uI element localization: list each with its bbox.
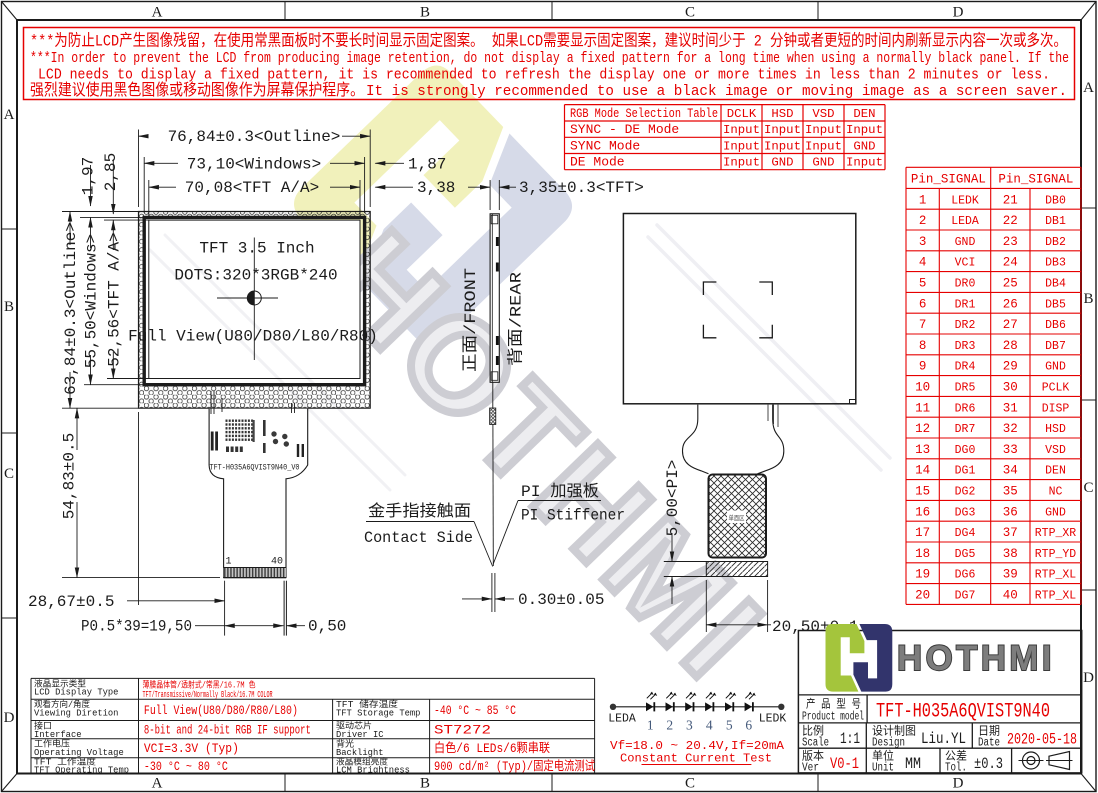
svg-text:9: 9 bbox=[919, 360, 927, 374]
svg-text:TFT-H035A6QVIST9N40: TFT-H035A6QVIST9N40 bbox=[876, 701, 1050, 724]
svg-text:LCD Display Type: LCD Display Type bbox=[34, 688, 118, 698]
svg-text:DG3: DG3 bbox=[955, 506, 976, 519]
svg-text:C: C bbox=[4, 466, 14, 482]
svg-text:DB6: DB6 bbox=[1045, 319, 1066, 332]
svg-text:金手指接触面: 金手指接触面 bbox=[368, 502, 471, 521]
svg-text:Interface: Interface bbox=[34, 730, 82, 740]
svg-text:900 cd/m² (Typ)/固定电流测试: 900 cd/m² (Typ)/固定电流测试 bbox=[434, 758, 595, 774]
svg-text:RTP_XR: RTP_XR bbox=[1035, 527, 1077, 540]
svg-text:2: 2 bbox=[666, 718, 673, 733]
svg-text:1: 1 bbox=[225, 557, 231, 568]
svg-text:54,83±0.5: 54,83±0.5 bbox=[61, 433, 79, 519]
svg-text:VSD: VSD bbox=[812, 107, 834, 121]
svg-text:Input: Input bbox=[805, 140, 842, 154]
svg-text:±0.3: ±0.3 bbox=[974, 755, 1003, 773]
svg-text:DEN: DEN bbox=[853, 107, 875, 121]
svg-text:Ver: Ver bbox=[802, 762, 819, 775]
svg-text:27: 27 bbox=[1003, 318, 1018, 332]
svg-text:强烈建议使用黑色图像或移动图像作为屏幕保护程序。: 强烈建议使用黑色图像或移动图像作为屏幕保护程序。 bbox=[30, 81, 364, 100]
svg-text:19: 19 bbox=[915, 568, 930, 582]
svg-text:LEDK: LEDK bbox=[951, 194, 979, 207]
svg-text:V0-1: V0-1 bbox=[830, 755, 859, 773]
svg-text:4: 4 bbox=[919, 256, 927, 270]
svg-text:HSD: HSD bbox=[1045, 423, 1066, 436]
svg-text:DE Mode: DE Mode bbox=[570, 155, 625, 170]
svg-text:24: 24 bbox=[1003, 256, 1018, 270]
svg-text:2020-05-18: 2020-05-18 bbox=[1007, 731, 1077, 749]
svg-text:32: 32 bbox=[1003, 422, 1018, 436]
svg-text:Pin_SIGNAL: Pin_SIGNAL bbox=[998, 173, 1073, 187]
svg-text:DEN: DEN bbox=[1045, 465, 1066, 478]
svg-text:B: B bbox=[420, 776, 430, 792]
svg-text:29: 29 bbox=[1003, 360, 1018, 374]
svg-text:D: D bbox=[4, 710, 15, 726]
svg-text:Input: Input bbox=[846, 156, 883, 170]
svg-text:DG4: DG4 bbox=[955, 527, 976, 540]
svg-text:Input: Input bbox=[846, 123, 883, 137]
svg-text:DG2: DG2 bbox=[955, 486, 976, 499]
svg-text:39: 39 bbox=[1003, 568, 1018, 582]
svg-text:D: D bbox=[1083, 670, 1094, 686]
svg-text:Constant Current Test: Constant Current Test bbox=[620, 752, 772, 766]
svg-text:0.30±0.05: 0.30±0.05 bbox=[518, 591, 604, 609]
svg-text:16: 16 bbox=[915, 505, 930, 519]
svg-text:35: 35 bbox=[1003, 485, 1018, 499]
svg-text:Design: Design bbox=[872, 737, 905, 750]
svg-text:Full View(U80/D80/L80/R80): Full View(U80/D80/L80/R80) bbox=[128, 328, 378, 346]
svg-text:2,85: 2,85 bbox=[102, 153, 120, 191]
svg-text:11: 11 bbox=[915, 401, 930, 415]
svg-text:1:1: 1:1 bbox=[840, 730, 860, 748]
svg-text:Full View(U80/D80/R80/L80): Full View(U80/D80/R80/L80) bbox=[144, 704, 298, 718]
svg-text:33: 33 bbox=[1003, 443, 1018, 457]
svg-text:DR0: DR0 bbox=[955, 278, 976, 291]
svg-text:55,50<Windows>: 55,50<Windows> bbox=[83, 234, 101, 368]
svg-text:GND: GND bbox=[853, 140, 875, 154]
svg-text:DB2: DB2 bbox=[1045, 236, 1066, 249]
svg-text:单面区: 单面区 bbox=[729, 513, 745, 522]
svg-text:Unit: Unit bbox=[872, 762, 894, 775]
svg-text:Tol.: Tol. bbox=[945, 762, 967, 775]
svg-text:6: 6 bbox=[745, 718, 752, 733]
svg-text:52,56<TFT A/A>: 52,56<TFT A/A> bbox=[105, 232, 123, 366]
svg-text:3: 3 bbox=[686, 718, 693, 733]
svg-text:Driver IC: Driver IC bbox=[336, 730, 384, 740]
svg-text:HSD: HSD bbox=[771, 107, 793, 121]
svg-text:21: 21 bbox=[1003, 193, 1018, 207]
svg-text:GND: GND bbox=[771, 156, 793, 170]
svg-text:70,08<TFT A/A>: 70,08<TFT A/A> bbox=[185, 179, 319, 197]
svg-text:8: 8 bbox=[919, 339, 927, 353]
svg-text:DB7: DB7 bbox=[1045, 340, 1066, 353]
svg-text:8-bit and 24-bit RGB IF suppor: 8-bit and 24-bit RGB IF support bbox=[144, 724, 311, 738]
svg-text:12: 12 bbox=[915, 422, 930, 436]
svg-text:Contact Side: Contact Side bbox=[364, 529, 473, 547]
svg-text:DG6: DG6 bbox=[955, 569, 976, 582]
svg-text:C: C bbox=[685, 5, 695, 21]
svg-text:DG7: DG7 bbox=[955, 590, 976, 603]
svg-text:产 品 型 号: 产 品 型 号 bbox=[806, 697, 861, 712]
svg-text:MM: MM bbox=[905, 755, 921, 773]
svg-text:73,10<Windows>: 73,10<Windows> bbox=[187, 155, 321, 173]
svg-text:C: C bbox=[685, 776, 695, 792]
svg-text:1,87: 1,87 bbox=[408, 155, 446, 173]
svg-text:NC: NC bbox=[1049, 486, 1063, 499]
svg-text:A: A bbox=[152, 776, 163, 792]
svg-text:22: 22 bbox=[1003, 214, 1018, 228]
svg-text:28,67±0.5: 28,67±0.5 bbox=[28, 593, 114, 611]
svg-text:5: 5 bbox=[919, 277, 927, 291]
svg-text:正面/FRONT: 正面/FRONT bbox=[462, 268, 480, 372]
svg-text:5: 5 bbox=[726, 718, 733, 733]
svg-text:14: 14 bbox=[915, 464, 930, 478]
svg-text:1: 1 bbox=[919, 193, 927, 207]
svg-text:B: B bbox=[420, 5, 430, 21]
svg-text:It is strongly recommended to: It is strongly recommended to use a blac… bbox=[366, 83, 1067, 100]
svg-text:30: 30 bbox=[1003, 381, 1018, 395]
svg-text:Input: Input bbox=[805, 123, 842, 137]
svg-text:HOTHMI: HOTHMI bbox=[897, 639, 1055, 678]
svg-text:D: D bbox=[953, 776, 964, 792]
svg-text:Input: Input bbox=[723, 140, 760, 154]
svg-text:背面/REAR: 背面/REAR bbox=[507, 272, 526, 366]
svg-text:VCI=3.3V (Typ): VCI=3.3V (Typ) bbox=[144, 742, 239, 756]
svg-text:DB3: DB3 bbox=[1045, 257, 1066, 270]
svg-text:3: 3 bbox=[919, 235, 927, 249]
svg-text:GND: GND bbox=[955, 236, 976, 249]
svg-text:0,50: 0,50 bbox=[308, 618, 346, 636]
svg-text:LEDA: LEDA bbox=[951, 215, 979, 228]
svg-text:34: 34 bbox=[1003, 464, 1018, 478]
svg-text:17: 17 bbox=[915, 526, 930, 540]
svg-text:A: A bbox=[4, 107, 15, 123]
svg-text:Liu.YL: Liu.YL bbox=[921, 730, 966, 748]
svg-text:31: 31 bbox=[1003, 401, 1018, 415]
svg-text:Backlight: Backlight bbox=[336, 748, 384, 758]
svg-text:Input: Input bbox=[764, 123, 801, 137]
svg-text:RTP_YD: RTP_YD bbox=[1035, 548, 1077, 561]
svg-text:薄膜晶体管/透射式/常黑/16.7M 色: 薄膜晶体管/透射式/常黑/16.7M 色 bbox=[143, 679, 256, 691]
svg-text:5,00<PI>: 5,00<PI> bbox=[664, 460, 682, 537]
svg-text:***为防止LCD产生图像残留，在使用常黑面板时不要长时间显: ***为防止LCD产生图像残留，在使用常黑面板时不要长时间显示固定图案。 如果L… bbox=[30, 32, 1067, 51]
svg-text:4: 4 bbox=[706, 718, 713, 733]
svg-text:Product model: Product model bbox=[802, 711, 864, 724]
svg-text:1,97: 1,97 bbox=[80, 157, 98, 195]
svg-text:DR4: DR4 bbox=[955, 361, 976, 374]
svg-text:LEDK: LEDK bbox=[759, 713, 787, 726]
svg-text:ST7272: ST7272 bbox=[434, 724, 491, 738]
svg-text:RTP_XL: RTP_XL bbox=[1035, 590, 1077, 603]
svg-text:1: 1 bbox=[647, 718, 654, 733]
svg-text:Scale: Scale bbox=[802, 737, 829, 750]
svg-text:Date: Date bbox=[978, 737, 1000, 750]
svg-text:DR5: DR5 bbox=[955, 382, 976, 395]
svg-text:28: 28 bbox=[1003, 339, 1018, 353]
svg-text:DCLK: DCLK bbox=[727, 107, 757, 121]
svg-text:PI Stiffener: PI Stiffener bbox=[521, 507, 625, 525]
svg-text:DR2: DR2 bbox=[955, 319, 976, 332]
svg-text:7: 7 bbox=[919, 318, 927, 332]
svg-text:15: 15 bbox=[915, 485, 930, 499]
svg-text:76,84±0.3<Outline>: 76,84±0.3<Outline> bbox=[168, 128, 341, 146]
svg-text:LCD needs to display a fixed p: LCD needs to display a fixed pattern, it… bbox=[38, 67, 1050, 84]
svg-text:DG1: DG1 bbox=[955, 465, 976, 478]
svg-text:DR3: DR3 bbox=[955, 340, 976, 353]
svg-text:VCI: VCI bbox=[955, 257, 976, 270]
svg-text:20: 20 bbox=[915, 589, 930, 603]
svg-text:LCM Brightness: LCM Brightness bbox=[336, 765, 410, 775]
svg-text:DR6: DR6 bbox=[955, 402, 976, 415]
svg-text:SYNC Mode: SYNC Mode bbox=[570, 139, 640, 154]
svg-text:C: C bbox=[1083, 480, 1093, 496]
svg-text:6: 6 bbox=[919, 297, 927, 311]
svg-text:***In order to prevent the LCD: ***In order to prevent the LCD from prod… bbox=[30, 50, 1069, 67]
svg-text:TFT 3.5 Inch: TFT 3.5 Inch bbox=[199, 240, 314, 258]
svg-text:SYNC - DE Mode: SYNC - DE Mode bbox=[570, 122, 679, 137]
svg-text:Input: Input bbox=[764, 140, 801, 154]
svg-text:26: 26 bbox=[1003, 297, 1018, 311]
svg-text:3,35±0.3<TFT>: 3,35±0.3<TFT> bbox=[519, 179, 644, 197]
svg-text:VSD: VSD bbox=[1045, 444, 1066, 457]
svg-text:RGB Mode Selection Table: RGB Mode Selection Table bbox=[570, 106, 718, 121]
svg-text:DG0: DG0 bbox=[955, 444, 976, 457]
svg-text:40: 40 bbox=[1003, 589, 1018, 603]
svg-text:B: B bbox=[1083, 291, 1093, 307]
svg-text:DB5: DB5 bbox=[1045, 298, 1066, 311]
svg-text:PI 加强板: PI 加强板 bbox=[521, 482, 599, 501]
svg-text:36: 36 bbox=[1003, 505, 1018, 519]
svg-text:DB4: DB4 bbox=[1045, 278, 1066, 291]
svg-text:D: D bbox=[953, 5, 964, 21]
svg-text:Input: Input bbox=[723, 123, 760, 137]
svg-text:23: 23 bbox=[1003, 235, 1018, 249]
svg-text:GND: GND bbox=[812, 156, 834, 170]
svg-text:DB0: DB0 bbox=[1045, 194, 1066, 207]
svg-text:Viewing Diretion: Viewing Diretion bbox=[34, 709, 118, 719]
svg-text:RTP_XL: RTP_XL bbox=[1035, 569, 1077, 582]
svg-text:DISP: DISP bbox=[1042, 402, 1070, 415]
svg-text:25: 25 bbox=[1003, 277, 1018, 291]
svg-text:13: 13 bbox=[915, 443, 930, 457]
svg-text:A: A bbox=[152, 5, 163, 21]
svg-text:37: 37 bbox=[1003, 526, 1018, 540]
svg-text:DR1: DR1 bbox=[955, 298, 976, 311]
svg-text:Input: Input bbox=[723, 156, 760, 170]
svg-text:TFT Storage Temp: TFT Storage Temp bbox=[336, 709, 420, 719]
svg-text:P0.5*39=19,50: P0.5*39=19,50 bbox=[81, 618, 192, 636]
svg-text:TFT/Transmissive/Normally Blac: TFT/Transmissive/Normally Black/16.7M CO… bbox=[143, 690, 273, 700]
svg-text:40: 40 bbox=[271, 557, 283, 568]
svg-text:DG5: DG5 bbox=[955, 548, 976, 561]
svg-text:Pin_SIGNAL: Pin_SIGNAL bbox=[911, 173, 986, 187]
svg-text:A: A bbox=[1083, 80, 1094, 96]
svg-text:DR7: DR7 bbox=[955, 423, 976, 436]
svg-text:-40 °C ~ 85 °C: -40 °C ~ 85 °C bbox=[434, 704, 516, 718]
svg-text:10: 10 bbox=[915, 381, 930, 395]
svg-text:3,38: 3,38 bbox=[417, 179, 455, 197]
svg-text:白色/6 LEDs/6颗串联: 白色/6 LEDs/6颗串联 bbox=[434, 740, 550, 756]
svg-text:GND: GND bbox=[1045, 361, 1066, 374]
svg-text:63,84±0.3<Outline>: 63,84±0.3<Outline> bbox=[62, 222, 80, 395]
svg-text:TFT Operating Temp: TFT Operating Temp bbox=[34, 765, 129, 775]
svg-text:Operating Voltage: Operating Voltage bbox=[34, 748, 124, 758]
svg-text:PCLK: PCLK bbox=[1042, 382, 1070, 395]
svg-text:-30 °C ~ 80 °C: -30 °C ~ 80 °C bbox=[144, 760, 228, 774]
svg-text:18: 18 bbox=[915, 547, 930, 561]
svg-text:38: 38 bbox=[1003, 547, 1018, 561]
svg-text:GND: GND bbox=[1045, 506, 1066, 519]
svg-text:TFT-H035A6QVIST9N40_V0: TFT-H035A6QVIST9N40_V0 bbox=[210, 464, 300, 473]
svg-text:LEDA: LEDA bbox=[608, 713, 636, 726]
svg-text:DB1: DB1 bbox=[1045, 215, 1066, 228]
svg-text:B: B bbox=[4, 299, 14, 315]
svg-text:2: 2 bbox=[919, 214, 927, 228]
